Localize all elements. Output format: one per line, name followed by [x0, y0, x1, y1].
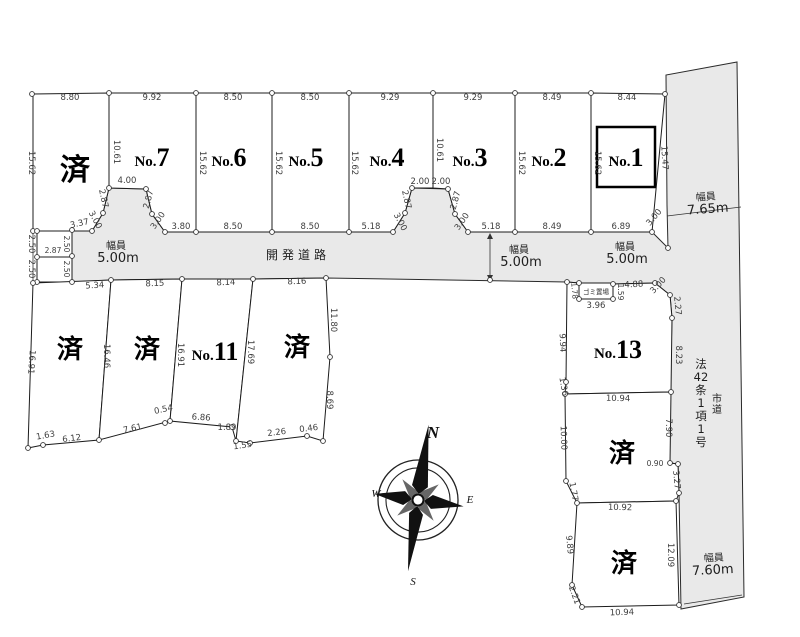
- measurement-label: 2.87: [45, 246, 62, 255]
- measurement-label: 10.61: [434, 138, 444, 162]
- vertex-dot: [666, 246, 671, 251]
- measurement-label: 3.27: [670, 470, 682, 490]
- measurement-label: 3.96: [587, 301, 606, 311]
- vertex-dot: [251, 277, 256, 282]
- vertex-dot: [90, 229, 95, 234]
- plot-map-page: N W E S 8.809.928.508.509.299.298.498.44…: [0, 0, 800, 637]
- measurement-label: 3.80: [172, 222, 191, 232]
- measurement-label: 8.49: [543, 93, 562, 103]
- road-label: 7.65m: [686, 201, 729, 219]
- vertex-dot: [446, 187, 451, 192]
- plot-label: 済: [60, 153, 91, 188]
- vertex-dot: [168, 419, 173, 424]
- road-label: 5.00m: [500, 255, 542, 270]
- compass-e: E: [466, 494, 474, 506]
- measurement-label: 16.91: [175, 343, 185, 367]
- plot-label: 済: [611, 548, 638, 579]
- measurement-label: 2.27: [671, 296, 683, 316]
- measurement-label: 7.90: [663, 419, 673, 438]
- vertex-dot: [270, 91, 275, 96]
- measurement-label: 15.47: [658, 145, 669, 170]
- vertex-dot: [611, 297, 616, 302]
- measurement-label: 6.89: [612, 222, 631, 232]
- measurement-label: 2.50: [26, 235, 36, 254]
- measurement-label: 9.92: [143, 93, 162, 103]
- measurement-label: 1.36: [556, 376, 569, 396]
- measurement-label: 15.62: [349, 151, 359, 175]
- plot-label: 済: [284, 332, 311, 363]
- measurement-label: 10.92: [608, 503, 633, 513]
- vertex-dot: [677, 491, 682, 496]
- vertex-dot: [109, 278, 114, 283]
- compass-n: N: [426, 423, 440, 442]
- vertex-dot: [589, 91, 594, 96]
- measurement-label: 10.94: [610, 608, 635, 619]
- vertex-dot: [328, 355, 333, 360]
- vertex-dot: [107, 91, 112, 96]
- vertex-dot: [513, 230, 518, 235]
- measurement-label: 6.86: [191, 412, 211, 423]
- road-label: 5.00m: [606, 252, 648, 267]
- measurement-label: 8.50: [301, 93, 320, 103]
- measurement-label: 16.91: [25, 350, 37, 375]
- vertex-dot: [31, 281, 36, 286]
- measurement-label: 8.44: [618, 93, 637, 103]
- vertex-dot: [180, 277, 185, 282]
- measurement-label: 6.12: [62, 433, 82, 445]
- measurement-label: 5.18: [482, 222, 501, 232]
- vertex-dot: [403, 211, 408, 216]
- land-plot-map: N W E S 8.809.928.508.509.299.298.498.44…: [0, 0, 800, 637]
- measurement-label: 10.61: [111, 140, 121, 164]
- measurement-label: 5.18: [362, 222, 381, 232]
- measurement-label: 2.00: [432, 177, 451, 187]
- measurement-label: 15.62: [26, 151, 36, 175]
- measurement-label: 15.62: [197, 151, 207, 175]
- measurement-label: 1.89: [218, 423, 237, 433]
- vertex-dot: [677, 603, 682, 608]
- vertex-dot: [676, 462, 681, 467]
- measurement-label: 9.29: [381, 93, 400, 103]
- vertex-dot: [347, 91, 352, 96]
- vertex-dot: [611, 282, 616, 287]
- measurement-label: 16.46: [101, 344, 111, 368]
- vertex-dot: [107, 186, 112, 191]
- vertex-dot: [321, 439, 326, 444]
- measurement-label: 8.16: [287, 277, 306, 288]
- measurement-label: 8.69: [324, 391, 334, 410]
- measurement-label: 2.00: [411, 177, 430, 187]
- measurement-label: 9.94: [557, 333, 568, 352]
- vertex-dot: [163, 230, 168, 235]
- measurement-label: 0.90: [647, 459, 664, 468]
- vertex-dot: [565, 280, 570, 285]
- measurement-label: 1.77: [566, 481, 579, 501]
- vertex-dot: [488, 278, 493, 283]
- measurement-label: 11.80: [328, 308, 338, 332]
- measurement-label: 8.23: [673, 346, 683, 365]
- measurement-label: 9.29: [464, 93, 483, 103]
- vertex-dot: [35, 229, 40, 234]
- measurement-label: 12.09: [665, 543, 675, 567]
- vertex-dot: [391, 230, 396, 235]
- vertex-dot: [347, 230, 352, 235]
- measurement-label: 1.55: [233, 440, 253, 453]
- measurement-label: 8.14: [216, 278, 235, 289]
- vertex-dot: [194, 230, 199, 235]
- measurement-label: 10.94: [606, 394, 631, 404]
- measurement-label: 2.50: [26, 260, 36, 279]
- plot-label: 済: [134, 334, 161, 365]
- measurement-label: 10.00: [558, 426, 569, 451]
- vertex-dot: [270, 230, 275, 235]
- road-label: ゴミ置場: [583, 287, 610, 296]
- measurement-label: 8.49: [543, 222, 562, 232]
- vertex-dot: [70, 254, 75, 259]
- measurement-label: 8.15: [145, 279, 164, 290]
- measurement-label: 8.50: [224, 93, 243, 103]
- measurement-label: 2.50: [62, 261, 71, 278]
- measurement-label: 15.62: [516, 151, 526, 175]
- vertex-dot: [669, 390, 674, 395]
- vertex-dot: [26, 446, 31, 451]
- measurement-label: 4.88: [624, 280, 643, 291]
- vertex-dot: [466, 230, 471, 235]
- vertex-dot: [674, 499, 679, 504]
- vertex-dot: [150, 212, 155, 217]
- vertex-dot: [589, 230, 594, 235]
- plot-label: 済: [57, 334, 84, 365]
- road-label: 開発道路: [266, 247, 330, 262]
- measurement-label: 17.69: [245, 340, 255, 364]
- measurement-label: 8.50: [224, 222, 243, 232]
- vertex-dot: [70, 280, 75, 285]
- vertical-road-text: 市道: [712, 392, 722, 416]
- road-label: 7.60m: [692, 562, 734, 579]
- vertex-dot: [575, 501, 580, 506]
- measurement-label: 9.89: [563, 535, 575, 555]
- vertex-dot: [41, 443, 46, 448]
- vertex-dot: [30, 92, 35, 97]
- measurement-label: 2.50: [62, 236, 71, 253]
- vertex-dot: [163, 421, 168, 426]
- measurement-label: 4.00: [118, 176, 137, 186]
- vertex-dot: [324, 276, 329, 281]
- vertex-dot: [663, 92, 668, 97]
- vertex-dot: [668, 461, 673, 466]
- vertex-dot: [97, 438, 102, 443]
- compass-s: S: [410, 576, 416, 588]
- compass-w: W: [371, 488, 381, 500]
- measurement-label: 1.78: [569, 282, 579, 300]
- measurement-label: 8.80: [61, 93, 80, 103]
- vertex-dot: [580, 605, 585, 610]
- plot-label: 済: [609, 438, 636, 469]
- vertex-dot: [453, 212, 458, 217]
- measurement-label: 8.50: [301, 222, 320, 232]
- measurement-label: 15.62: [273, 151, 283, 175]
- vertex-dot: [513, 91, 518, 96]
- vertex-dot: [431, 91, 436, 96]
- measurement-label: 15.62: [592, 151, 602, 175]
- vertex-dot: [670, 316, 675, 321]
- vertex-dot: [194, 91, 199, 96]
- measurement-label: 5.34: [85, 280, 105, 291]
- road-label: 5.00m: [97, 251, 139, 266]
- compass: N W E S: [364, 419, 474, 588]
- vertex-dot: [650, 230, 655, 235]
- vertex-dot: [101, 211, 106, 216]
